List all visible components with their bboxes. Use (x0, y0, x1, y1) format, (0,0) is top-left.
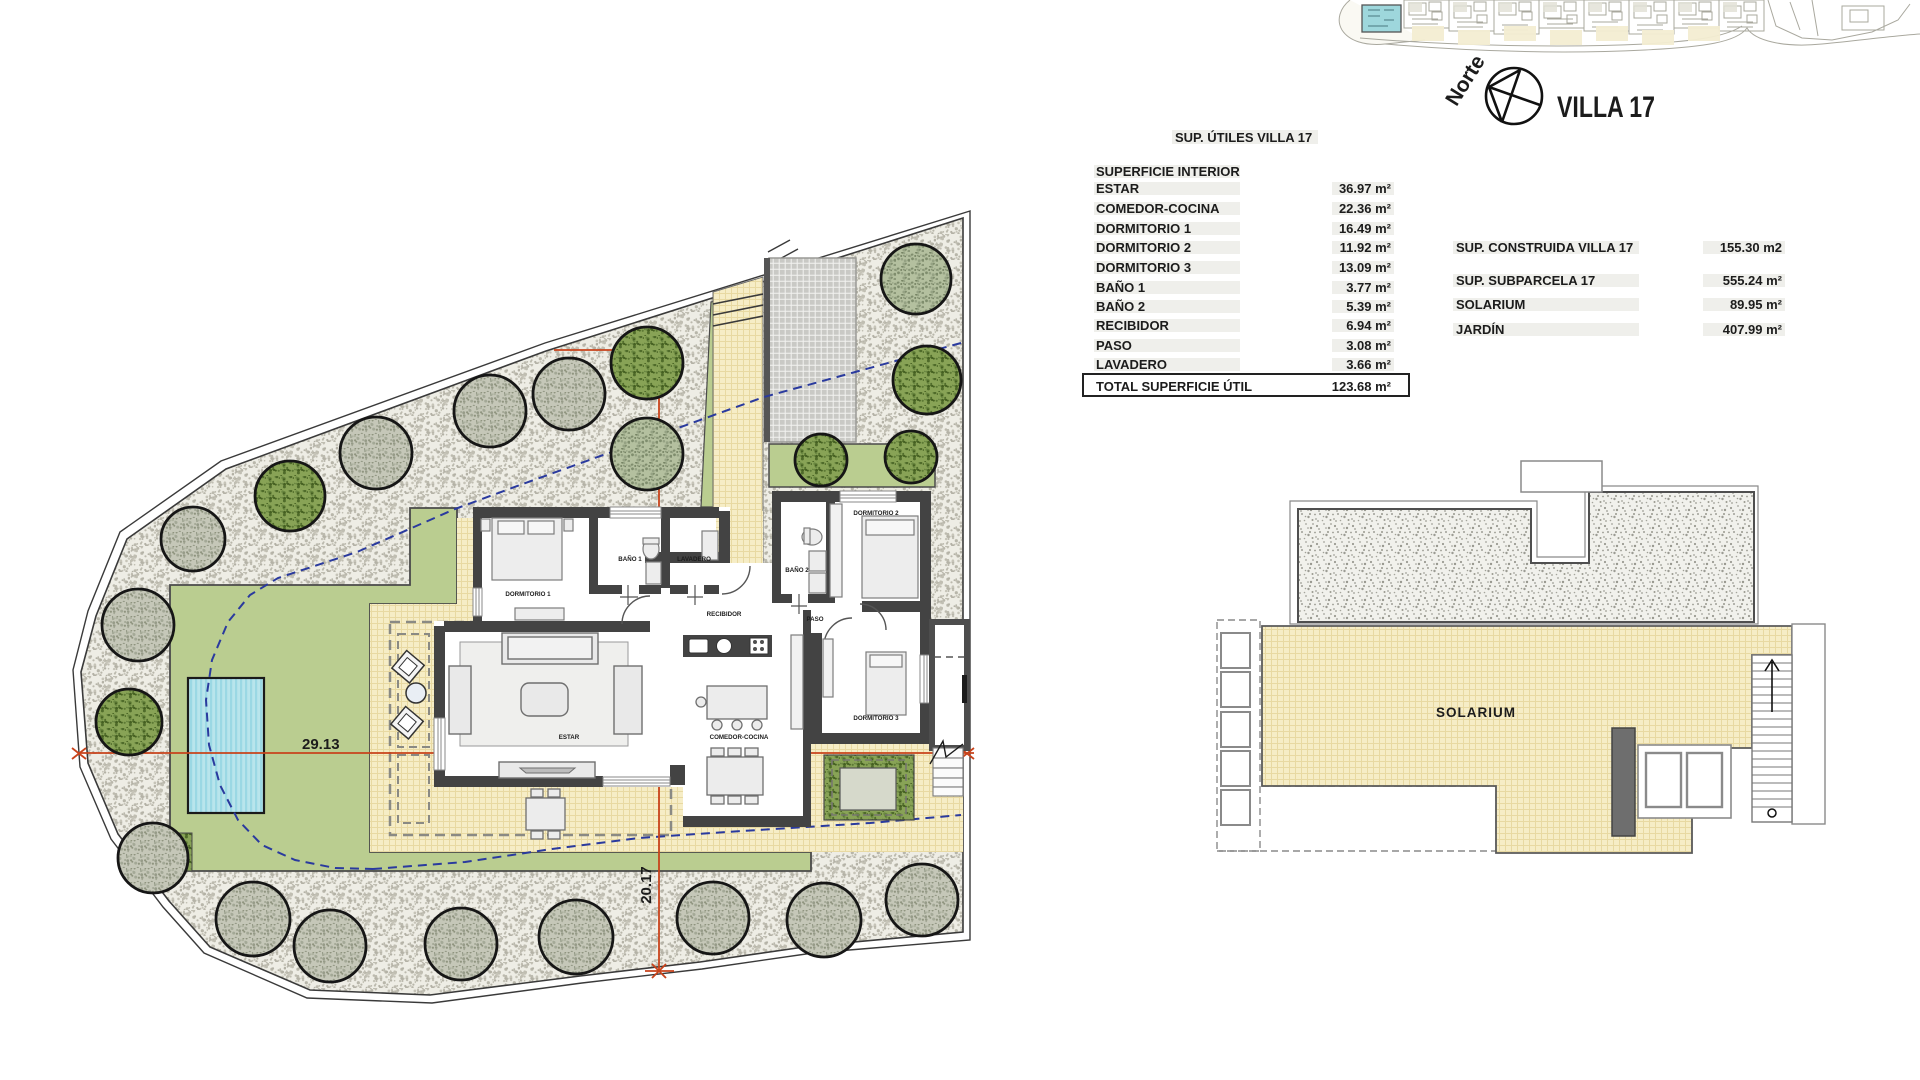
svg-text:13.09 m²: 13.09 m² (1339, 260, 1392, 275)
svg-text:ESTAR: ESTAR (559, 734, 580, 741)
svg-text:SUP. ÚTILES VILLA 17: SUP. ÚTILES VILLA 17 (1175, 130, 1312, 145)
svg-text:3.77 m²: 3.77 m² (1346, 280, 1391, 295)
svg-text:TOTAL SUPERFICIE ÚTIL: TOTAL SUPERFICIE ÚTIL (1096, 379, 1252, 394)
svg-text:VILLA 17: VILLA 17 (1557, 91, 1655, 124)
svg-text:SUPERFICIE INTERIOR: SUPERFICIE INTERIOR (1096, 164, 1240, 179)
svg-text:6.94 m²: 6.94 m² (1346, 318, 1391, 333)
svg-text:407.99 m²: 407.99 m² (1723, 322, 1783, 337)
svg-text:123.68 m²: 123.68 m² (1332, 379, 1392, 394)
svg-text:RECIBIDOR: RECIBIDOR (1096, 318, 1170, 333)
svg-text:RECIBIDOR: RECIBIDOR (707, 611, 742, 618)
svg-text:SUP. CONSTRUIDA VILLA 17: SUP. CONSTRUIDA VILLA 17 (1456, 240, 1633, 255)
svg-text:555.24 m²: 555.24 m² (1723, 273, 1783, 288)
svg-text:29.13: 29.13 (302, 736, 340, 753)
svg-text:DORMITORIO 1: DORMITORIO 1 (505, 591, 551, 598)
svg-text:89.95 m²: 89.95 m² (1730, 297, 1783, 312)
svg-text:BAÑO 2: BAÑO 2 (1096, 299, 1145, 314)
svg-text:5.39 m²: 5.39 m² (1346, 299, 1391, 314)
svg-text:SOLARIUM: SOLARIUM (1456, 297, 1525, 312)
svg-text:LAVADERO: LAVADERO (1096, 357, 1167, 372)
svg-text:155.30 m2: 155.30 m2 (1720, 240, 1782, 255)
svg-text:DORMITORIO 2: DORMITORIO 2 (853, 510, 899, 517)
svg-text:PASO: PASO (806, 616, 823, 623)
svg-text:22.36 m²: 22.36 m² (1339, 201, 1392, 216)
svg-text:BAÑO 1: BAÑO 1 (618, 556, 642, 563)
svg-text:16.49 m²: 16.49 m² (1339, 221, 1392, 236)
svg-text:JARDÍN: JARDÍN (1456, 322, 1504, 337)
svg-text:3.08 m²: 3.08 m² (1346, 338, 1391, 353)
svg-text:DORMITORIO 2: DORMITORIO 2 (1096, 240, 1191, 255)
svg-text:COMEDOR-COCINA: COMEDOR-COCINA (710, 734, 769, 741)
svg-text:DORMITORIO 1: DORMITORIO 1 (1096, 221, 1191, 236)
svg-text:36.97 m²: 36.97 m² (1339, 181, 1392, 196)
svg-text:SOLARIUM: SOLARIUM (1436, 705, 1516, 720)
svg-text:PASO: PASO (1096, 338, 1132, 353)
svg-text:BAÑO 1: BAÑO 1 (1096, 280, 1145, 295)
svg-text:DORMITORIO 3: DORMITORIO 3 (853, 715, 899, 722)
svg-text:BAÑO 2: BAÑO 2 (785, 567, 809, 574)
svg-text:COMEDOR-COCINA: COMEDOR-COCINA (1096, 201, 1220, 216)
svg-text:11.92 m²: 11.92 m² (1340, 240, 1392, 255)
svg-text:20.17: 20.17 (638, 866, 655, 904)
svg-text:ESTAR: ESTAR (1096, 181, 1140, 196)
svg-text:LAVADERO: LAVADERO (677, 556, 711, 563)
svg-text:DORMITORIO 3: DORMITORIO 3 (1096, 260, 1191, 275)
svg-text:3.66 m²: 3.66 m² (1346, 357, 1391, 372)
svg-text:SUP. SUBPARCELA 17: SUP. SUBPARCELA 17 (1456, 273, 1595, 288)
